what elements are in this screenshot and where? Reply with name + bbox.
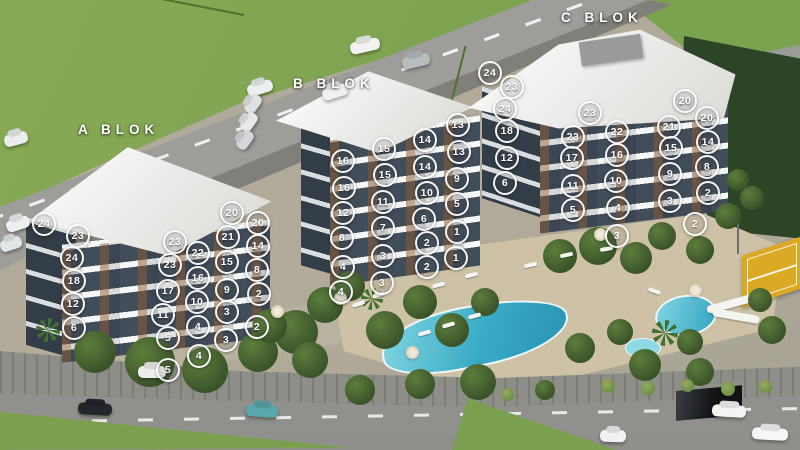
unit-marker[interactable]: 10 [604,169,628,193]
unit-marker[interactable]: 12 [61,292,85,316]
unit-marker[interactable]: 3 [214,328,238,352]
unit-marker[interactable]: 12 [495,146,519,170]
unit-marker[interactable]: 6 [412,207,436,231]
unit-marker[interactable]: 14 [413,155,437,179]
unit-marker[interactable]: 2 [415,231,439,255]
unit-marker[interactable]: 16 [331,149,355,173]
unit-marker[interactable]: 3 [371,244,395,268]
unit-marker[interactable]: 23 [66,224,90,248]
unit-marker[interactable]: 6 [62,316,86,340]
unit-marker[interactable]: 16 [605,143,629,167]
unit-marker[interactable]: 24 [493,97,517,121]
unit-marker[interactable]: 9 [215,278,239,302]
unit-marker[interactable]: 20 [220,201,244,225]
unit-marker[interactable]: 23 [163,230,187,254]
unit-marker[interactable]: 21 [216,225,240,249]
unit-marker[interactable]: 18 [62,269,86,293]
unit-marker[interactable]: 5 [156,326,180,350]
unit-marker[interactable]: 5 [561,198,585,222]
unit-marker[interactable]: 1 [445,220,469,244]
unit-marker[interactable]: 6 [493,171,517,195]
unit-marker[interactable]: 2 [245,315,269,339]
unit-marker[interactable]: 15 [373,163,397,187]
unit-marker[interactable]: 4 [186,315,210,339]
unit-marker[interactable]: 20 [246,211,270,235]
block-a-label: A BLOK [78,122,159,137]
unit-marker[interactable]: 20 [673,89,697,113]
unit-marker[interactable]: 14 [246,234,270,258]
unit-marker[interactable]: 23 [158,253,182,277]
block-c-label: C BLOK [561,10,643,25]
unit-marker[interactable]: 13 [447,140,471,164]
unit-marker[interactable]: 15 [215,250,239,274]
unit-marker[interactable]: 13 [446,113,470,137]
unit-marker[interactable]: 16 [332,176,356,200]
site-plan-render: 2423241812623231711552216104420211593320… [0,0,800,450]
unit-marker[interactable]: 1 [444,246,468,270]
unit-marker[interactable]: 8 [330,226,354,250]
unit-marker[interactable]: 20 [695,106,719,130]
unit-marker[interactable]: 24 [478,61,502,85]
unit-marker[interactable]: 2 [683,212,707,236]
unit-marker[interactable]: 3 [370,271,394,295]
unit-marker[interactable]: 11 [371,190,395,214]
unit-marker[interactable]: 12 [331,201,355,225]
unit-marker[interactable]: 15 [372,137,396,161]
unit-marker[interactable]: 10 [185,290,209,314]
block-b-label: B BLOK [293,76,375,91]
unit-marker[interactable]: 5 [445,192,469,216]
unit-marker[interactable]: 4 [331,255,355,279]
unit-marker[interactable]: 17 [560,146,584,170]
unit-marker[interactable]: 3 [605,224,629,248]
unit-marker[interactable]: 16 [186,266,210,290]
unit-marker[interactable]: 3 [215,300,239,324]
unit-marker[interactable]: 22 [605,120,629,144]
unit-marker[interactable]: 17 [156,279,180,303]
unit-marker[interactable]: 23 [578,101,602,125]
unit-marker[interactable]: 15 [659,136,683,160]
unit-marker[interactable]: 10 [415,181,439,205]
unit-marker[interactable]: 14 [413,128,437,152]
unit-marker[interactable]: 2 [247,282,271,306]
unit-marker[interactable]: 23 [500,75,524,99]
unit-marker[interactable]: 24 [60,246,84,270]
unit-marker[interactable]: 14 [696,130,720,154]
unit-marker[interactable]: 9 [445,167,469,191]
unit-marker[interactable]: 4 [329,280,353,304]
unit-marker[interactable]: 2 [415,255,439,279]
unit-marker[interactable]: 5 [156,358,180,382]
unit-markers-layer: 2423241812623231711552216104420211593320… [0,0,800,450]
unit-marker[interactable]: 11 [151,303,175,327]
unit-marker[interactable]: 11 [561,174,585,198]
unit-marker[interactable]: 24 [32,212,56,236]
unit-marker[interactable]: 22 [186,241,210,265]
unit-marker[interactable]: 18 [495,119,519,143]
unit-marker[interactable]: 2 [696,181,720,205]
unit-marker[interactable]: 8 [245,258,269,282]
unit-marker[interactable]: 7 [371,216,395,240]
unit-marker[interactable]: 3 [658,189,682,213]
unit-marker[interactable]: 8 [695,155,719,179]
unit-marker[interactable]: 9 [658,162,682,186]
unit-marker[interactable]: 4 [187,344,211,368]
unit-marker[interactable]: 4 [606,196,630,220]
